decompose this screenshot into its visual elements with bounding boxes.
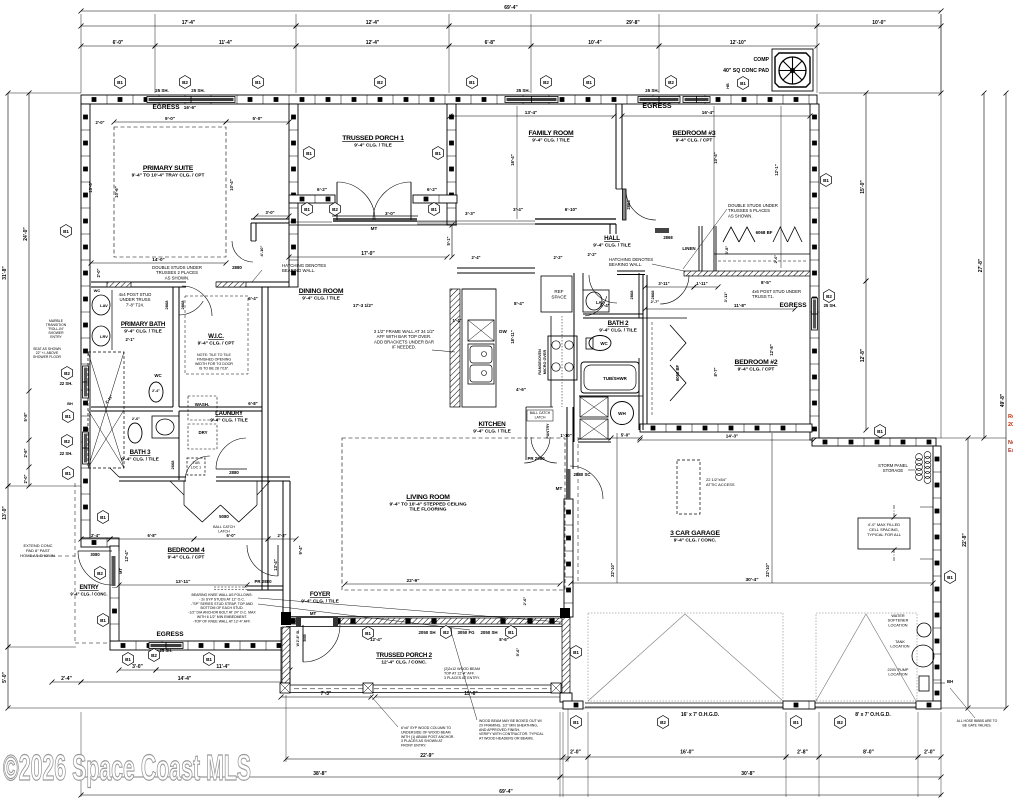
- svg-text:13'-0": 13'-0": [2, 506, 8, 520]
- svg-text:B2: B2: [668, 80, 674, 85]
- svg-text:TANK: TANK: [895, 640, 905, 644]
- svg-text:BH: BH: [947, 679, 953, 684]
- svg-text:AS SHOWN.: AS SHOWN.: [728, 213, 753, 218]
- svg-text:4'-10": 4'-10": [259, 245, 264, 256]
- svg-text:6'-2": 6'-2": [427, 187, 437, 192]
- svg-text:B1: B1: [100, 618, 106, 623]
- svg-text:BEARING KNEE WALL AS FOLLOWS:: BEARING KNEE WALL AS FOLLOWS:: [191, 593, 252, 597]
- svg-text:3'-4": 3'-4": [513, 207, 523, 212]
- svg-text:BEDROOM #2: BEDROOM #2: [735, 359, 778, 366]
- svg-text:9'-4" CLG. / CPT: 9'-4" CLG. / CPT: [198, 341, 235, 347]
- svg-text:WH: WH: [618, 411, 626, 416]
- svg-text:22'-8": 22'-8": [962, 533, 968, 547]
- svg-text:6'-2": 6'-2": [317, 187, 327, 192]
- svg-text:IS TO BE 28 7/16".: IS TO BE 28 7/16".: [199, 367, 229, 371]
- svg-text:TUB: TUB: [192, 461, 200, 465]
- svg-text:TYPICAL FOR ALL: TYPICAL FOR ALL: [867, 532, 902, 537]
- svg-text:9'-4" CLG. / TILE: 9'-4" CLG. / TILE: [210, 418, 248, 424]
- svg-text:9'-4" CLG. / CPT: 9'-4" CLG. / CPT: [168, 555, 205, 561]
- svg-text:10'-4": 10'-4": [229, 179, 234, 190]
- svg-text:2'-4": 2'-4": [152, 389, 160, 393]
- svg-text:LOCATION: LOCATION: [890, 645, 909, 649]
- svg-text:MT: MT: [310, 611, 317, 616]
- svg-text:TOP AT 12'-4" AFF.: TOP AT 12'-4" AFF.: [444, 672, 475, 676]
- svg-text:AT WOOD HEADERS OR BEAMS.: AT WOOD HEADERS OR BEAMS.: [479, 737, 534, 741]
- svg-text:8' x 7' O.H.G.D.: 8' x 7' O.H.G.D.: [855, 712, 891, 718]
- svg-text:B2: B2: [64, 439, 70, 444]
- svg-text:5'-8": 5'-8": [23, 412, 28, 421]
- svg-text:8'-7": 8'-7": [713, 367, 718, 376]
- svg-text:B1: B1: [63, 229, 69, 234]
- svg-text:16' x 7' O.H.G.D.: 16' x 7' O.H.G.D.: [681, 712, 720, 718]
- svg-text:9'-4" CLG. / TILE: 9'-4" CLG. / TILE: [593, 243, 631, 249]
- svg-text:29'-8": 29'-8": [626, 20, 640, 26]
- svg-text:B2: B2: [97, 571, 103, 576]
- svg-text:WIDTH FOR TG DOOR: WIDTH FOR TG DOOR: [195, 362, 233, 366]
- svg-text:WITH 6 1/2" MIN EMBEDMENT.: WITH 6 1/2" MIN EMBEDMENT.: [197, 615, 248, 619]
- svg-text:BE GATE VALVES.: BE GATE VALVES.: [962, 723, 991, 727]
- svg-text:220V PUMP: 220V PUMP: [888, 668, 909, 672]
- svg-text:2668: 2668: [170, 460, 175, 470]
- svg-text:17'-0": 17'-0": [361, 251, 375, 257]
- svg-text:LOCATION: LOCATION: [888, 623, 907, 627]
- svg-text:ENTRY: ENTRY: [50, 335, 62, 339]
- svg-text:9'-4" CLG. / TILE: 9'-4" CLG. / TILE: [473, 429, 511, 435]
- svg-text:30'-8": 30'-8": [741, 771, 755, 777]
- svg-text:LAV: LAV: [100, 303, 108, 308]
- svg-text:DRY: DRY: [198, 430, 207, 435]
- svg-text:Es: Es: [1008, 448, 1013, 454]
- svg-text:2'-4": 2'-4": [61, 676, 72, 682]
- svg-text:2'-0": 2'-0": [96, 268, 101, 277]
- svg-text:25 SH.: 25 SH.: [155, 88, 168, 93]
- svg-text:15'-5": 15'-5": [88, 181, 93, 192]
- svg-text:6'-0": 6'-0": [113, 40, 124, 46]
- svg-text:-"SP" SERIES STUD STRAP, TOP A: -"SP" SERIES STUD STRAP, TOP AND: [191, 602, 253, 606]
- svg-text:ENTRY: ENTRY: [79, 585, 98, 591]
- svg-text:B1: B1: [117, 80, 123, 85]
- svg-text:22 SH.: 22 SH.: [60, 381, 73, 386]
- svg-text:3'-0": 3'-0": [385, 211, 395, 216]
- svg-text:BATH 3: BATH 3: [130, 449, 151, 456]
- svg-text:2868: 2868: [629, 290, 634, 300]
- svg-text:16'-6": 16'-6": [184, 105, 196, 110]
- svg-text:-TOP OF KNEE WALL AT 12'-4" AF: -TOP OF KNEE WALL AT 12'-4" AFF.: [193, 619, 251, 623]
- svg-text:8'-6": 8'-6": [499, 637, 508, 642]
- svg-text:3 PLACES AT ENTRY.: 3 PLACES AT ENTRY.: [444, 676, 480, 680]
- svg-text:B2: B2: [837, 720, 843, 725]
- svg-text:EGRESS: EGRESS: [779, 302, 807, 309]
- svg-text:BATH 2: BATH 2: [608, 320, 629, 327]
- svg-text:22'-10": 22'-10": [610, 563, 615, 577]
- svg-text:SHOWER FLOOR: SHOWER FLOOR: [33, 355, 61, 359]
- svg-text:MT: MT: [556, 486, 563, 491]
- svg-text:3080: 3080: [303, 634, 307, 642]
- svg-text:3'-8": 3'-8": [724, 246, 729, 255]
- svg-text:2'-0": 2'-0": [95, 120, 104, 125]
- svg-text:2868: 2868: [164, 300, 169, 310]
- svg-text:3'-11": 3'-11": [658, 281, 669, 286]
- svg-text:MT: MT: [118, 568, 123, 574]
- svg-text:9'-4" CLG. / TILE: 9'-4" CLG. / TILE: [599, 328, 637, 334]
- svg-text:12'-1": 12'-1": [774, 164, 779, 175]
- svg-text:6'-0": 6'-0": [226, 533, 235, 538]
- svg-text:9'-4" CLG. / TILE: 9'-4" CLG. / TILE: [354, 143, 392, 149]
- svg-text:9'-4" CLG. / TILE: 9'-4" CLG. / TILE: [124, 329, 162, 335]
- svg-text:9'-0": 9'-0": [165, 116, 175, 121]
- svg-text:LRV: LRV: [100, 334, 108, 339]
- svg-text:8'-5": 8'-5": [761, 280, 771, 285]
- svg-text:3'-3": 3'-3": [465, 211, 475, 216]
- svg-text:3 CAR GARAGE: 3 CAR GARAGE: [670, 530, 720, 537]
- svg-text:STORAGE: STORAGE: [883, 468, 904, 473]
- svg-text:AND APPROVED FINISH-: AND APPROVED FINISH-: [479, 728, 521, 732]
- svg-text:B2: B2: [660, 720, 666, 725]
- svg-text:LOC 1: LOC 1: [191, 466, 201, 470]
- svg-text:2'-0": 2'-0": [570, 750, 581, 756]
- svg-text:BEARING WALL.: BEARING WALL.: [282, 268, 315, 273]
- svg-text:LINEN: LINEN: [682, 246, 695, 251]
- svg-text:10'-0": 10'-0": [872, 20, 886, 26]
- svg-text:10'-6": 10'-6": [114, 186, 119, 197]
- svg-text:4'-6": 4'-6": [516, 387, 526, 392]
- svg-text:ATTIC ACCESS: ATTIC ACCESS: [706, 482, 735, 487]
- svg-text:6"x6" SYP WOOD COLUMN TO: 6"x6" SYP WOOD COLUMN TO: [401, 726, 451, 730]
- svg-text:LIVING ROOM: LIVING ROOM: [406, 494, 450, 501]
- svg-text:25 SH.: 25 SH.: [824, 303, 837, 308]
- svg-text:2'-1": 2'-1": [125, 337, 134, 342]
- svg-text:6'-8": 6'-8": [147, 533, 156, 538]
- svg-text:2'-6": 2'-6": [132, 417, 140, 421]
- svg-text:B1: B1: [65, 414, 71, 419]
- svg-text:13'-4": 13'-4": [124, 550, 129, 561]
- svg-text:2050 SH: 2050 SH: [480, 630, 497, 635]
- svg-text:PRIMARY SUITE: PRIMARY SUITE: [143, 165, 194, 172]
- svg-text:EGRESS: EGRESS: [642, 103, 672, 110]
- svg-text:IF NEEDED.: IF NEEDED.: [392, 345, 416, 350]
- svg-text:2'-0": 2'-0": [23, 474, 28, 483]
- svg-text:B1: B1: [823, 178, 829, 183]
- svg-text:2'-6": 2'-6": [522, 597, 527, 606]
- svg-text:MICRO OVER: MICRO OVER: [543, 350, 547, 375]
- svg-text:B1: B1: [125, 657, 131, 662]
- svg-text:24'-0": 24'-0": [23, 227, 29, 241]
- svg-text:6'-8": 6'-8": [485, 40, 496, 46]
- svg-text:VERIFY WITH CONTRACTOR. TYPICA: VERIFY WITH CONTRACTOR. TYPICAL: [479, 732, 544, 736]
- svg-text:14'-4": 14'-4": [178, 676, 192, 682]
- svg-text:14'-3": 14'-3": [726, 434, 738, 439]
- svg-text:B1: B1: [100, 515, 106, 520]
- svg-text:PR 2880: PR 2880: [254, 579, 272, 584]
- svg-text:©2026 Space Coast MLS: ©2026 Space Coast MLS: [3, 747, 251, 788]
- svg-text:B1: B1: [947, 575, 953, 580]
- svg-text:-1/2" DIA ANCHOR BOLT AT 24" O: -1/2" DIA ANCHOR BOLT AT 24" O.C. MAX: [188, 611, 256, 615]
- svg-text:40" SQ CONC PAD: 40" SQ CONC PAD: [723, 68, 769, 74]
- svg-text:25 SH.: 25 SH.: [160, 648, 173, 653]
- svg-text:2050 SH: 2050 SH: [418, 630, 435, 635]
- svg-text:Re: Re: [1008, 414, 1013, 420]
- svg-text:22'-9": 22'-9": [406, 578, 419, 584]
- svg-text:49'-8": 49'-8": [1000, 393, 1006, 407]
- svg-text:REF: REF: [554, 289, 563, 294]
- svg-text:BEDROOM #3: BEDROOM #3: [673, 130, 716, 137]
- svg-text:No: No: [1008, 440, 1013, 446]
- svg-text:BEDROOM 4: BEDROOM 4: [168, 547, 206, 554]
- svg-text:BEARING WALL.: BEARING WALL.: [609, 262, 642, 267]
- svg-text:27'-8": 27'-8": [978, 258, 984, 272]
- svg-text:22'-9": 22'-9": [420, 753, 434, 759]
- svg-text:B1: B1: [573, 650, 579, 655]
- svg-text:AS SHOWN.: AS SHOWN.: [165, 275, 190, 280]
- svg-text:2'-0": 2'-0": [924, 750, 935, 756]
- svg-text:10'-4": 10'-4": [588, 40, 602, 46]
- svg-text:9'-4" CLG. / TILE: 9'-4" CLG. / TILE: [302, 296, 340, 302]
- svg-text:TRUSSED PORCH 2: TRUSSED PORCH 2: [376, 652, 433, 659]
- svg-text:WC: WC: [600, 341, 608, 346]
- svg-text:2880: 2880: [232, 265, 242, 270]
- svg-text:17'-3 1/2": 17'-3 1/2": [353, 303, 373, 308]
- svg-text:B2: B2: [377, 80, 383, 85]
- svg-text:2868: 2868: [650, 290, 655, 300]
- svg-text:BOTTOM OF EACH STUD.: BOTTOM OF EACH STUD.: [201, 606, 244, 610]
- svg-text:3050 FG: 3050 FG: [457, 630, 475, 635]
- svg-text:TRUSSED PORCH 1: TRUSSED PORCH 1: [342, 135, 404, 142]
- svg-text:38'-8": 38'-8": [313, 771, 327, 777]
- svg-text:9'-4" CLG. / CPT: 9'-4" CLG. / CPT: [738, 367, 775, 373]
- svg-text:3'-0": 3'-0": [265, 210, 274, 215]
- svg-text:B1: B1: [877, 429, 883, 434]
- svg-text:PANTRY: PANTRY: [546, 423, 550, 439]
- svg-text:LATCH: LATCH: [535, 415, 546, 419]
- svg-text:13'-4": 13'-4": [525, 110, 537, 115]
- svg-text:B2: B2: [826, 294, 832, 299]
- svg-text:TILE FLOORING: TILE FLOORING: [409, 507, 446, 513]
- svg-text:DW: DW: [499, 329, 507, 334]
- svg-text:FRONT ENTRY.: FRONT ENTRY.: [401, 744, 426, 748]
- svg-text:HALL: HALL: [604, 235, 620, 242]
- svg-text:RANGE/OVEN: RANGE/OVEN: [538, 349, 542, 375]
- svg-text:3080: 3080: [90, 552, 100, 557]
- svg-text:WASH.: WASH.: [195, 402, 209, 407]
- svg-text:12'-4": 12'-4": [366, 40, 380, 46]
- svg-text:2880 SC: 2880 SC: [573, 472, 591, 477]
- svg-text:30'-4": 30'-4": [745, 577, 758, 583]
- svg-text:DINING ROOM: DINING ROOM: [299, 288, 344, 295]
- svg-text:B2: B2: [543, 80, 549, 85]
- svg-text:5'-6": 5'-6": [515, 648, 520, 657]
- svg-text:2868: 2868: [180, 300, 185, 310]
- svg-text:LAUNDRY: LAUNDRY: [215, 411, 243, 417]
- svg-text:6068 BF: 6068 BF: [756, 230, 773, 235]
- svg-text:31'-8": 31'-8": [2, 266, 8, 280]
- svg-text:B1: B1: [365, 631, 371, 636]
- svg-text:12'-8": 12'-8": [860, 348, 866, 362]
- svg-text:1'-11": 1'-11": [696, 281, 707, 286]
- svg-text:B1: B1: [431, 207, 437, 212]
- svg-text:B1: B1: [573, 720, 579, 725]
- svg-text:18'-11": 18'-11": [510, 330, 515, 343]
- svg-text:2X FRAMING, 1/2" MIN SHEATHING: 2X FRAMING, 1/2" MIN SHEATHING,: [479, 723, 538, 727]
- svg-text:8'-0": 8'-0": [863, 750, 874, 756]
- svg-text:12'-8": 12'-8": [769, 344, 774, 355]
- svg-text:12'-4" CLG. / CONC.: 12'-4" CLG. / CONC.: [381, 660, 426, 666]
- svg-text:9'-4" CLG. / TILE: 9'-4" CLG. / TILE: [532, 138, 570, 144]
- svg-text:B2: B2: [64, 371, 70, 376]
- svg-text:KITCHEN: KITCHEN: [478, 421, 506, 428]
- svg-text:6'-4": 6'-4": [248, 296, 257, 301]
- svg-text:- 2x SYP STUDS AT 12" O.C.: - 2x SYP STUDS AT 12" O.C.: [199, 597, 245, 601]
- svg-text:6'-10": 6'-10": [565, 207, 577, 212]
- svg-text:B1: B1: [306, 151, 312, 156]
- svg-text:B1: B1: [508, 630, 514, 635]
- svg-text:9'-4" CLG. / CONC.: 9'-4" CLG. / CONC.: [70, 592, 107, 597]
- svg-text:16'-4": 16'-4": [702, 110, 714, 115]
- svg-text:BH: BH: [67, 402, 73, 406]
- svg-text:B2: B2: [443, 630, 449, 635]
- svg-text:16'-4": 16'-4": [510, 154, 515, 165]
- svg-text:14'-0": 14'-0": [152, 257, 164, 262]
- svg-text:HB: HB: [726, 83, 730, 89]
- svg-text:11'-4": 11'-4": [216, 664, 230, 670]
- svg-text:35 SH.: 35 SH.: [516, 88, 529, 93]
- svg-text:22'-10": 22'-10": [765, 563, 770, 577]
- svg-text:FOYER: FOYER: [310, 591, 331, 598]
- svg-text:5'-0": 5'-0": [621, 433, 630, 438]
- svg-text:B1: B1: [435, 151, 441, 156]
- svg-text:10'-4": 10'-4": [713, 152, 718, 163]
- svg-text:2'-8": 2'-8": [797, 750, 808, 756]
- svg-text:1'-4": 1'-4": [452, 318, 461, 323]
- svg-text:EGRESS: EGRESS: [152, 104, 180, 111]
- svg-text:HOME AS SHOWN.: HOME AS SHOWN.: [20, 553, 56, 558]
- svg-text:B2: B2: [332, 207, 338, 212]
- svg-text:B1: B1: [65, 471, 71, 476]
- svg-text:15'-0": 15'-0": [860, 180, 866, 194]
- svg-text:13'-4": 13'-4": [273, 559, 278, 570]
- svg-text:B1: B1: [793, 720, 799, 725]
- svg-text:9'-4": 9'-4": [298, 545, 303, 554]
- svg-text:5'-0": 5'-0": [2, 671, 8, 682]
- svg-text:NOTE: TILE TO TILE: NOTE: TILE TO TILE: [197, 353, 231, 357]
- svg-text:5'-1": 5'-1": [446, 236, 451, 245]
- svg-text:12'-4": 12'-4": [366, 20, 380, 26]
- svg-text:6'-8": 6'-8": [248, 401, 257, 406]
- svg-text:WC: WC: [94, 288, 101, 293]
- svg-text:20: 20: [1008, 422, 1013, 428]
- svg-text:2'-2": 2'-2": [553, 255, 562, 260]
- svg-text:UNDERSIDE OF WOOD BEAM: UNDERSIDE OF WOOD BEAM: [401, 730, 451, 734]
- svg-text:2'-7": 2'-7": [651, 299, 660, 304]
- svg-text:2'-0": 2'-0": [773, 255, 778, 264]
- svg-text:W 2'-8" SL: W 2'-8" SL: [296, 630, 300, 647]
- svg-text:B1: B1: [255, 80, 261, 85]
- svg-text:LOCATION: LOCATION: [888, 673, 907, 677]
- svg-text:2'-6": 2'-6": [23, 448, 28, 457]
- svg-text:25 SH.: 25 SH.: [645, 88, 658, 93]
- svg-text:1'-10": 1'-10": [560, 433, 571, 438]
- svg-text:EGRESS: EGRESS: [156, 631, 184, 638]
- svg-text:WOOD BEAM MAY BE BOXED OUT W/: WOOD BEAM MAY BE BOXED OUT W/: [479, 719, 542, 723]
- svg-text:2880: 2880: [229, 470, 239, 475]
- svg-text:COMP: COMP: [753, 57, 769, 63]
- svg-text:SPACE: SPACE: [551, 295, 566, 300]
- svg-text:69'-4": 69'-4": [504, 5, 518, 11]
- svg-text:9'-4" CLG. / CPT: 9'-4" CLG. / CPT: [676, 138, 713, 144]
- svg-text:5080: 5080: [219, 514, 229, 519]
- svg-text:2'-2": 2'-2": [587, 252, 596, 257]
- svg-text:8'-4": 8'-4": [514, 301, 524, 306]
- svg-text:69'-4": 69'-4": [499, 789, 513, 795]
- svg-text:5'-0": 5'-0": [253, 116, 263, 121]
- svg-text:3 PLACES AS SHOWN AT: 3 PLACES AS SHOWN AT: [401, 739, 443, 743]
- svg-text:12'-10": 12'-10": [730, 40, 747, 46]
- svg-text:B1: B1: [740, 81, 746, 86]
- svg-text:13'-11": 13'-11": [176, 579, 191, 584]
- svg-text:SOFTENER: SOFTENER: [888, 619, 909, 623]
- svg-text:2868: 2868: [626, 200, 631, 210]
- svg-text:11'-4": 11'-4": [219, 40, 233, 46]
- svg-text:16'-0": 16'-0": [680, 750, 694, 756]
- svg-text:FINISHED OPENING: FINISHED OPENING: [197, 358, 232, 362]
- svg-text:2'-4": 2'-4": [471, 255, 480, 260]
- svg-text:B1: B1: [586, 80, 592, 85]
- svg-text:7'-8" T24.: 7'-8" T24.: [126, 302, 144, 307]
- svg-text:9'-4" TO 10'-4" TRAY CLG. / CP: 9'-4" TO 10'-4" TRAY CLG. / CPT: [132, 173, 205, 179]
- svg-text:3'-11": 3'-11": [723, 292, 728, 303]
- svg-text:25 SH.: 25 SH.: [191, 88, 204, 93]
- svg-text:FAMILY ROOM: FAMILY ROOM: [528, 130, 574, 137]
- svg-text:9'-4" CLG. / TILE: 9'-4" CLG. / TILE: [121, 457, 159, 463]
- svg-text:B1: B1: [304, 207, 310, 212]
- svg-text:9'-4" CLG. / CONC.: 9'-4" CLG. / CONC.: [674, 538, 717, 544]
- svg-text:PR 2080: PR 2080: [527, 456, 545, 461]
- svg-text:9'-4" CLG. / TILE: 9'-4" CLG. / TILE: [301, 599, 339, 605]
- svg-text:B2: B2: [151, 653, 157, 658]
- svg-text:6068 BF: 6068 BF: [675, 365, 680, 382]
- svg-text:TUB/SHWR: TUB/SHWR: [603, 376, 627, 381]
- svg-text:BALL CATCH: BALL CATCH: [213, 525, 235, 529]
- svg-text:TRUSS T1.: TRUSS T1.: [752, 294, 774, 299]
- svg-text:B2: B2: [182, 80, 188, 85]
- svg-text:MT: MT: [371, 226, 378, 231]
- svg-text:W.I.C.: W.I.C.: [208, 333, 224, 340]
- svg-text:2'-4": 2'-4": [91, 533, 100, 538]
- svg-text:17'-4": 17'-4": [182, 20, 196, 26]
- svg-text:WC: WC: [154, 373, 162, 378]
- svg-text:2868: 2868: [663, 235, 673, 240]
- svg-text:2'-3": 2'-3": [277, 533, 286, 538]
- svg-text:11'-8": 11'-8": [734, 303, 746, 308]
- svg-text:B1: B1: [206, 657, 212, 662]
- svg-text:22 SH.: 22 SH.: [60, 451, 73, 456]
- svg-text:3'-0": 3'-0": [132, 664, 143, 670]
- svg-text:WITH (1) ABU66 POST ANCHOR.: WITH (1) ABU66 POST ANCHOR.: [401, 735, 454, 739]
- svg-text:B1: B1: [469, 80, 475, 85]
- svg-text:WATER: WATER: [891, 614, 905, 618]
- svg-text:12'-4": 12'-4": [370, 637, 382, 642]
- svg-text:PRIMARY BATH: PRIMARY BATH: [121, 321, 166, 328]
